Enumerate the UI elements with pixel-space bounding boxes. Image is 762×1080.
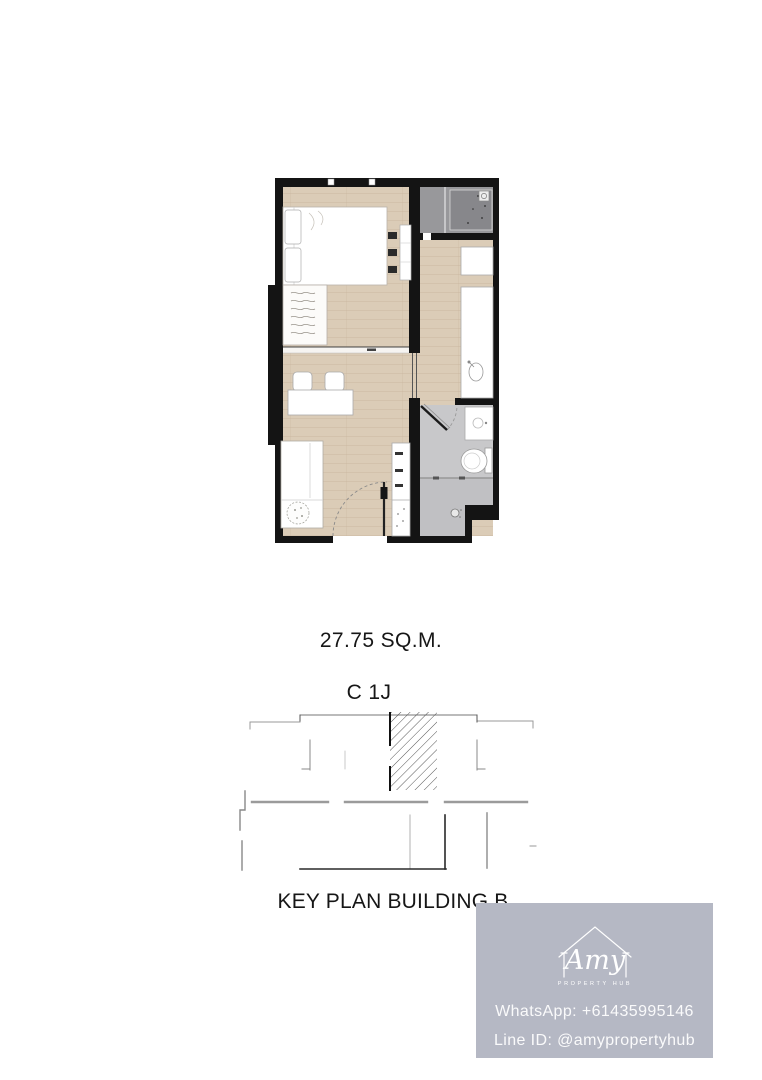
unit-location-hatch [390,712,437,790]
brand-script: Amy [561,945,625,976]
entrance-opening [333,536,387,543]
unit-type-label: C 1J [0,681,738,705]
sofa [281,441,323,528]
balcony-door-gap [423,233,431,240]
brand-logo: Amy PROPERTY HUB [545,917,645,991]
bed [283,207,387,285]
sliding-partition [283,347,409,353]
ac-unit-icon [479,191,489,201]
plant-icon [287,502,309,524]
kitchen-counter [461,247,493,398]
vanity [465,407,493,440]
watermark-card: Amy PROPERTY HUB WhatsApp: +61435995146 … [476,903,713,1058]
area-label: 27.75 SQ.M. [0,629,762,653]
line-id-contact: Line ID: @amypropertyhub [494,1032,695,1050]
key-plan-drawing [235,703,540,875]
shoe-cabinet [392,443,410,536]
whatsapp-contact: WhatsApp: +61435995146 [495,1003,694,1021]
wardrobe [283,285,327,345]
brand-subtitle: PROPERTY HUB [557,981,631,987]
balcony [420,187,493,233]
floor-plan-drawing [263,176,499,543]
toilet [461,448,492,473]
